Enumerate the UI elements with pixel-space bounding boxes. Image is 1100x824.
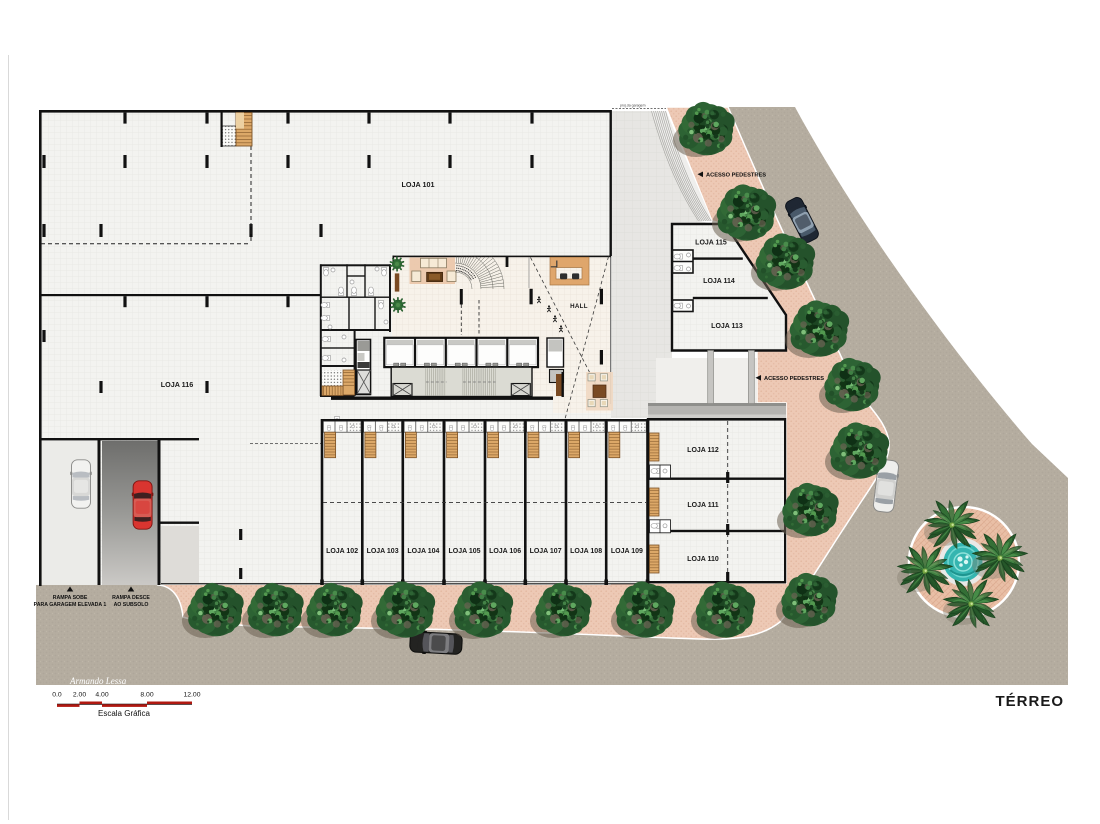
svg-text:LOJA 105: LOJA 105: [448, 548, 480, 555]
svg-text:12.00: 12.00: [183, 692, 200, 699]
svg-text:LOJA 104: LOJA 104: [407, 548, 439, 555]
svg-text:AO SUBSOLO: AO SUBSOLO: [114, 602, 149, 608]
svg-text:LOJA 113: LOJA 113: [711, 323, 743, 330]
svg-text:ACESSO PEDESTRES: ACESSO PEDESTRES: [764, 376, 824, 382]
svg-text:0.0: 0.0: [52, 692, 62, 699]
svg-text:HALL: HALL: [570, 303, 588, 310]
svg-text:LOJA 107: LOJA 107: [530, 548, 562, 555]
svg-text:RAMPA DESCE: RAMPA DESCE: [112, 595, 150, 601]
svg-text:LOJA 109: LOJA 109: [611, 548, 643, 555]
svg-text:Escala Gráfica: Escala Gráfica: [98, 709, 151, 718]
svg-text:LOJA 112: LOJA 112: [687, 447, 719, 454]
svg-text:RAMPA SOBE: RAMPA SOBE: [53, 595, 88, 601]
svg-text:LOJA 101: LOJA 101: [402, 180, 435, 189]
svg-text:LOJA 114: LOJA 114: [703, 278, 735, 285]
svg-text:LOJA 102: LOJA 102: [326, 548, 358, 555]
svg-text:LOJA 111: LOJA 111: [687, 502, 718, 509]
svg-text:proj.da garagem: proj.da garagem: [620, 104, 646, 108]
svg-text:Armando Lessa: Armando Lessa: [69, 676, 127, 686]
svg-text:8.00: 8.00: [140, 692, 153, 699]
svg-text:LOJA 116: LOJA 116: [161, 380, 194, 389]
svg-text:LOJA 115: LOJA 115: [695, 240, 727, 247]
svg-text:LOJA 108: LOJA 108: [570, 548, 602, 555]
svg-text:LOJA 110: LOJA 110: [687, 556, 719, 563]
svg-text:4.00: 4.00: [95, 692, 108, 699]
svg-text:2.00: 2.00: [73, 692, 86, 699]
svg-text:LOJA 103: LOJA 103: [367, 548, 399, 555]
svg-text:TÉRREO: TÉRREO: [995, 693, 1064, 710]
svg-text:ACESSO PEDESTRES: ACESSO PEDESTRES: [706, 173, 766, 179]
svg-text:LOJA 106: LOJA 106: [489, 548, 521, 555]
svg-text:PARA GARAGEM ELEVADA 1: PARA GARAGEM ELEVADA 1: [34, 602, 107, 608]
